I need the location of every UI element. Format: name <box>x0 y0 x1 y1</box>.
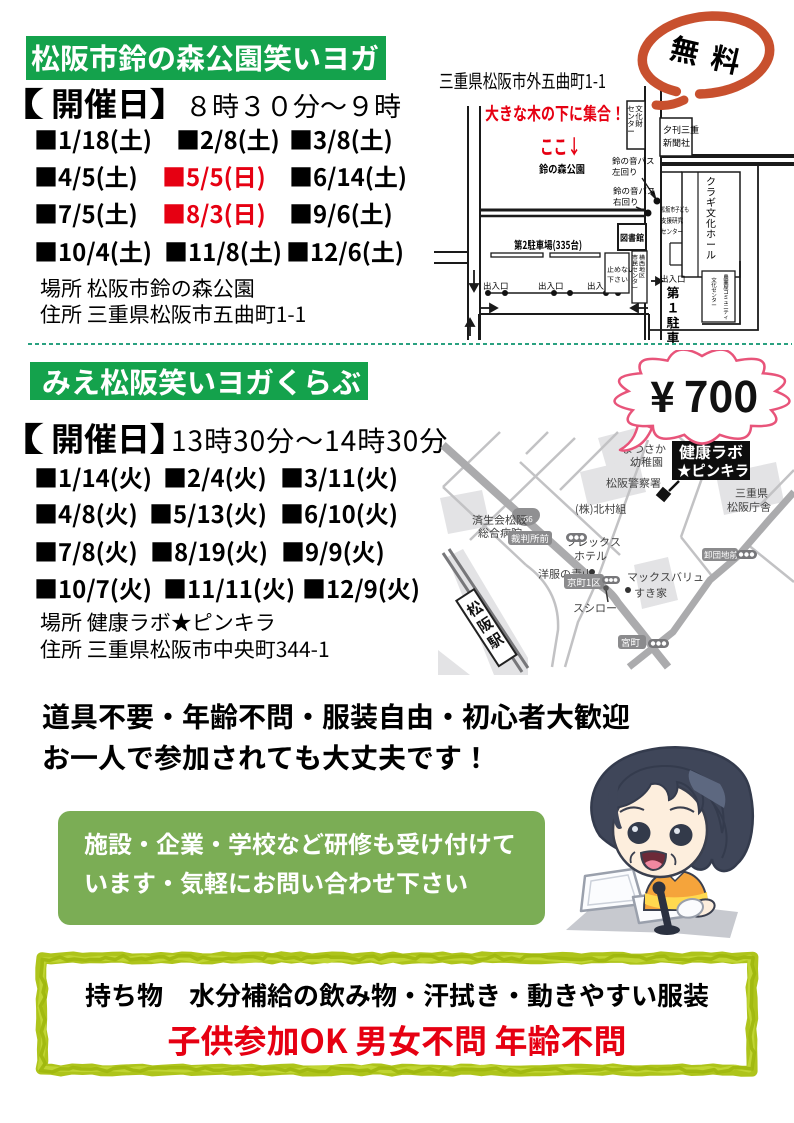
svg-text:下さい: 下さい <box>607 275 628 285</box>
svg-text:右回り: 右回り <box>613 196 639 208</box>
svg-text:夕刊三重: 夕刊三重 <box>663 123 699 136</box>
svg-text:市民センター: 市民センター <box>631 253 640 290</box>
svg-text:京町1区: 京町1区 <box>567 575 601 589</box>
svg-text:出入口: 出入口 <box>483 280 509 292</box>
svg-text:ここ↓: ここ↓ <box>540 131 581 160</box>
svg-text:新聞社: 新聞社 <box>663 136 690 149</box>
svg-text:第１駐車: 第１駐車 <box>664 285 683 346</box>
svg-text:裁判所前: 裁判所前 <box>511 531 549 545</box>
svg-text:センター: センター <box>661 227 683 237</box>
svg-text:すき家: すき家 <box>634 585 667 601</box>
svg-text:支援研究: 支援研究 <box>661 216 683 226</box>
svg-text:出入口: 出入口 <box>660 273 686 285</box>
svg-text:図書館: 図書館 <box>620 231 644 244</box>
svg-text:左回り: 左回り <box>612 166 638 178</box>
svg-text:宮町: 宮町 <box>621 635 641 649</box>
svg-text:¥700: ¥700 <box>650 364 758 425</box>
svg-text:クラギ文化ホール: クラギ文化ホール <box>704 176 719 260</box>
svg-text:農業屋コミュニティ: 農業屋コミュニティ <box>722 274 730 320</box>
svg-text:マックスバリュ: マックスバリュ <box>627 569 704 585</box>
svg-text:松阪庁舎: 松阪庁舎 <box>727 499 771 515</box>
svg-text:文化センター: 文化センター <box>710 277 718 307</box>
svg-text:無料: 無料 <box>666 25 757 85</box>
svg-text:(株)北村組: (株)北村組 <box>575 501 626 517</box>
svg-text:松阪市子ども: 松阪市子ども <box>661 205 689 215</box>
svg-text:★ピンキラ: ★ピンキラ <box>677 460 749 481</box>
svg-text:卸団地前: 卸団地前 <box>704 549 739 561</box>
svg-text:大きな木の下に集合！: 大きな木の下に集合！ <box>485 100 625 126</box>
svg-text:松阪警察署: 松阪警察署 <box>606 475 661 491</box>
svg-text:三重県松阪市外五曲町1-1: 三重県松阪市外五曲町1-1 <box>439 67 606 94</box>
svg-text:第2駐車場(335台): 第2駐車場(335台) <box>514 237 582 253</box>
svg-text:スシロー: スシロー <box>573 600 617 616</box>
svg-text:幼稚園: 幼稚園 <box>630 454 663 470</box>
svg-text:鈴の森公園: 鈴の森公園 <box>539 161 585 177</box>
svg-text:ホテル: ホテル <box>574 548 607 564</box>
svg-text:出入口: 出入口 <box>538 280 564 292</box>
